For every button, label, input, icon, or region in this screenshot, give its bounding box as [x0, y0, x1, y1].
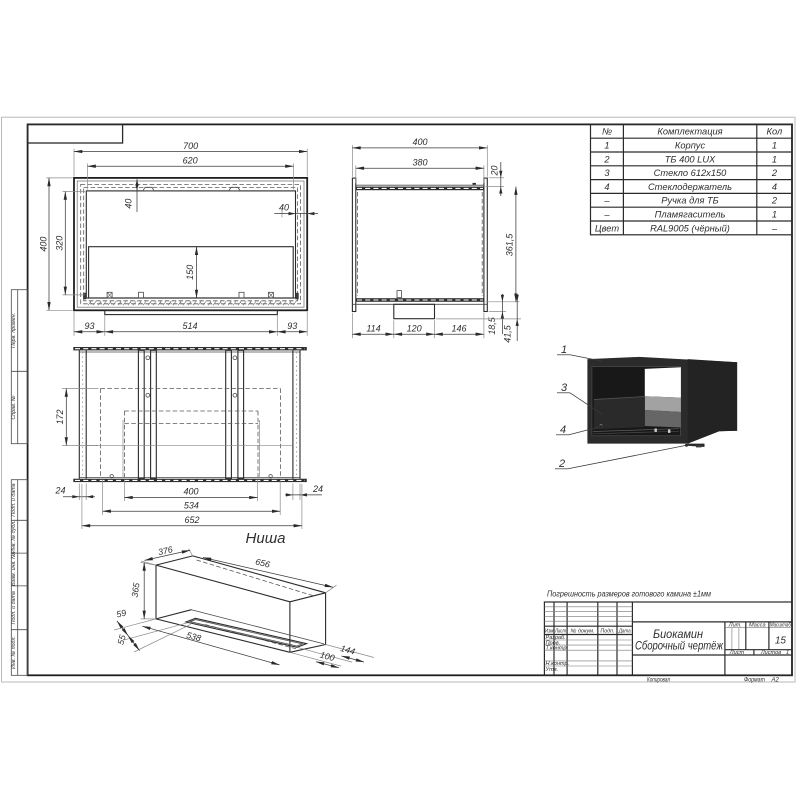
svg-text:1: 1 [772, 210, 777, 220]
svg-text:1: 1 [561, 344, 567, 356]
svg-text:620: 620 [183, 156, 198, 166]
svg-text:Ручка для ТБ: Ручка для ТБ [661, 196, 718, 206]
svg-text:700: 700 [183, 141, 198, 151]
svg-text:Комплектация: Комплектация [657, 127, 722, 137]
svg-text:15: 15 [775, 636, 787, 647]
svg-text:361,5: 361,5 [505, 233, 515, 257]
svg-text:2: 2 [771, 168, 778, 178]
svg-text:Копировал: Копировал [647, 678, 670, 684]
svg-text:172: 172 [55, 409, 65, 424]
svg-text:Пламягаситель: Пламягаситель [655, 210, 726, 220]
svg-text:–: – [771, 223, 778, 233]
svg-text:93: 93 [84, 321, 94, 331]
svg-text:365: 365 [130, 582, 142, 598]
svg-text:3: 3 [604, 168, 610, 178]
svg-text:400: 400 [183, 487, 198, 497]
svg-text:Подп.: Подп. [600, 629, 614, 635]
svg-text:Инв. № дубл.: Инв. № дубл. [11, 520, 17, 553]
svg-text:120: 120 [407, 323, 422, 333]
svg-text:2: 2 [603, 154, 610, 164]
svg-text:1: 1 [786, 650, 789, 656]
svg-text:146: 146 [451, 323, 466, 333]
svg-text:А2: А2 [771, 678, 780, 684]
svg-text:24: 24 [54, 486, 65, 496]
svg-text:41,5: 41,5 [503, 324, 513, 343]
svg-text:93: 93 [287, 321, 297, 331]
svg-text:Дата: Дата [618, 629, 631, 635]
svg-text:Стеклодержатель: Стеклодержатель [648, 182, 732, 192]
svg-text:–: – [603, 210, 610, 220]
svg-text:Перв. примен.: Перв. примен. [11, 313, 17, 348]
svg-text:Утв.: Утв. [545, 667, 559, 673]
svg-text:40: 40 [124, 199, 134, 209]
svg-text:RAL9005 (чёрный): RAL9005 (чёрный) [650, 223, 730, 233]
svg-text:Изм: Изм [545, 629, 554, 635]
svg-text:–: – [603, 196, 610, 206]
svg-text:114: 114 [366, 323, 380, 333]
svg-text:320: 320 [55, 236, 65, 251]
svg-text:4: 4 [604, 182, 609, 192]
svg-text:Биокамин: Биокамин [653, 629, 704, 641]
svg-text:№: № [602, 127, 612, 137]
svg-text:Лист: Лист [554, 629, 566, 635]
svg-text:Цвет: Цвет [595, 223, 619, 233]
svg-text:24: 24 [312, 484, 323, 494]
svg-text:1: 1 [604, 141, 609, 151]
svg-text:Справ. №: Справ. № [11, 395, 17, 419]
svg-text:Кол: Кол [767, 127, 783, 137]
svg-text:Т.контр.: Т.контр. [546, 646, 569, 652]
svg-text:4: 4 [560, 424, 566, 436]
svg-text:514: 514 [182, 321, 197, 331]
svg-text:40: 40 [279, 202, 289, 212]
svg-text:652: 652 [184, 515, 199, 525]
svg-text:400: 400 [38, 237, 48, 252]
svg-text:Подп. и дата: Подп. и дата [11, 591, 17, 624]
svg-text:Подп. и дата: Подп. и дата [11, 483, 17, 516]
svg-text:150: 150 [185, 265, 195, 280]
svg-text:Инв. № подл.: Инв. № подл. [11, 636, 17, 669]
svg-text:Взам. инв. №: Взам. инв. № [11, 553, 17, 586]
svg-text:20: 20 [490, 165, 500, 176]
svg-text:400: 400 [412, 137, 427, 147]
svg-text:4: 4 [772, 182, 777, 192]
svg-text:Корпус: Корпус [675, 141, 706, 151]
svg-text:380: 380 [412, 158, 427, 168]
svg-text:1: 1 [772, 141, 777, 151]
svg-text:Масса: Масса [749, 623, 766, 629]
svg-text:Листов: Листов [760, 650, 781, 656]
svg-text:534: 534 [184, 500, 199, 510]
svg-text:Погрешность размеров готового: Погрешность размеров готового камина ±1м… [547, 589, 711, 599]
svg-text:Масштаб: Масштаб [770, 623, 792, 629]
svg-text:2: 2 [558, 458, 565, 470]
svg-text:Формат: Формат [744, 678, 765, 684]
svg-text:Лист: Лист [729, 650, 745, 656]
svg-text:Лит.: Лит. [728, 623, 742, 629]
svg-text:3: 3 [561, 382, 568, 394]
svg-text:1: 1 [772, 154, 777, 164]
svg-text:ТБ 400 LUX: ТБ 400 LUX [665, 154, 716, 164]
svg-text:2: 2 [771, 196, 778, 206]
svg-text:Ниша: Ниша [246, 530, 286, 547]
svg-text:Сборочный чертёж: Сборочный чертёж [635, 641, 724, 653]
svg-text:Стекло 612х150: Стекло 612х150 [654, 168, 728, 178]
svg-text:№ докум.: № докум. [571, 629, 595, 635]
